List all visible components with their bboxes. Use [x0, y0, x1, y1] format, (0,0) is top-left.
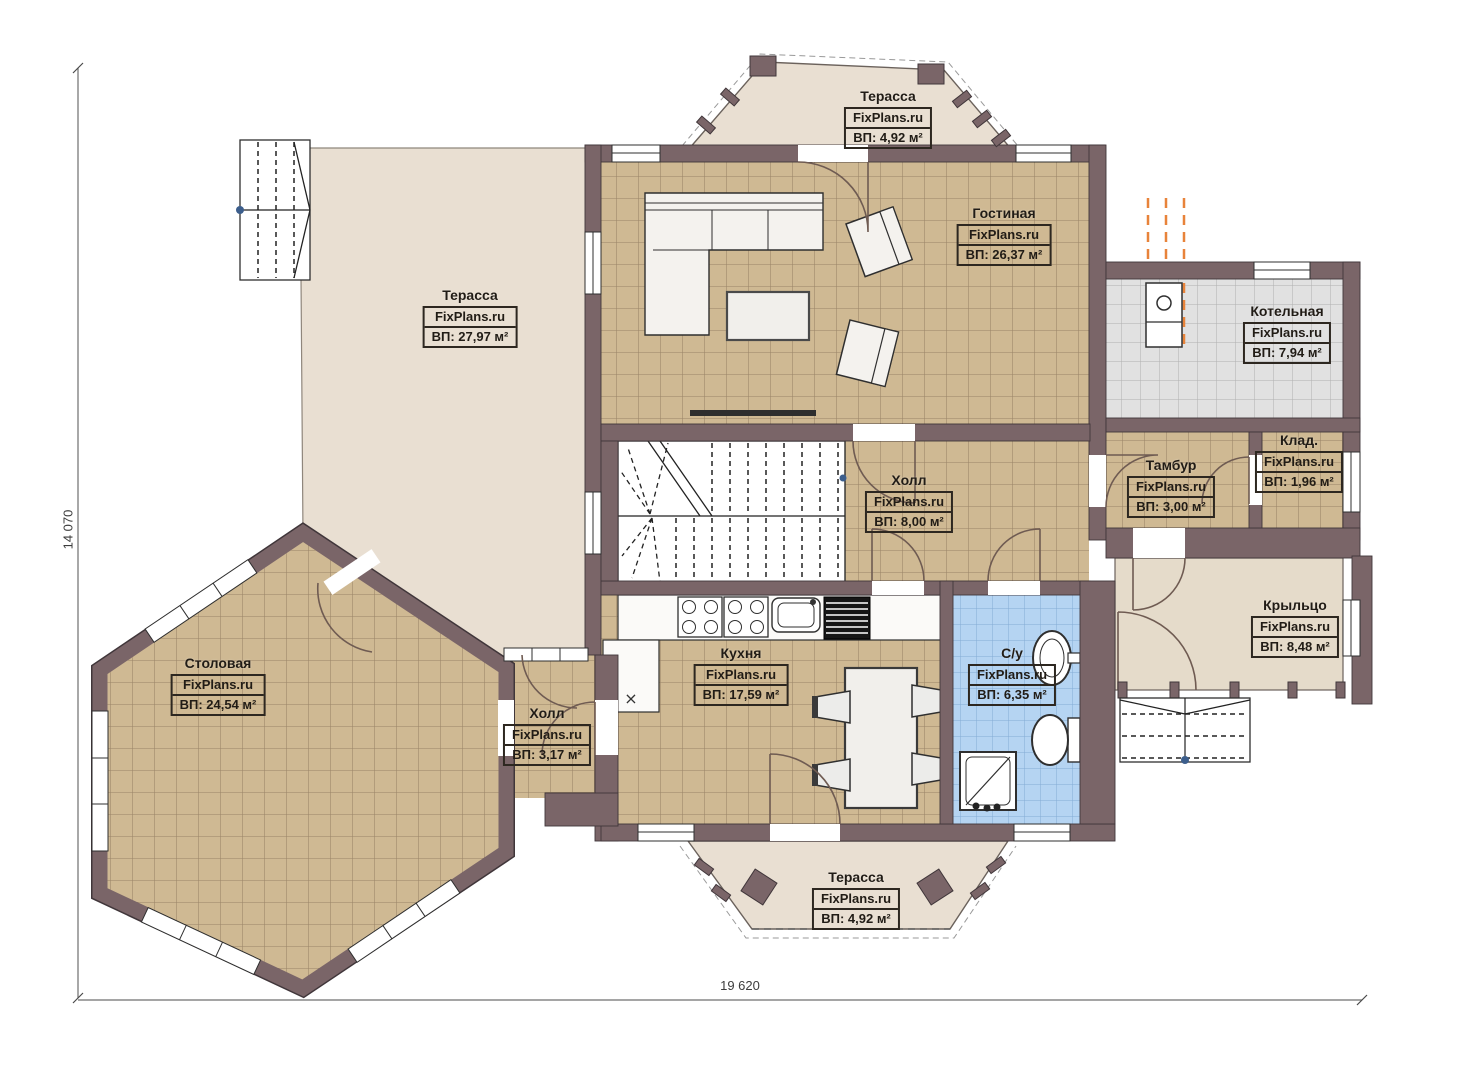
- room-area: ВП: 1,96 м²: [1257, 473, 1341, 491]
- room-label-terrace-bottom: Терасса FixPlans.ru ВП: 4,92 м²: [812, 869, 900, 930]
- room-brand: FixPlans.ru: [867, 493, 951, 513]
- room-name: Котельная: [1250, 303, 1323, 319]
- floor-plan-page: ×: [0, 0, 1473, 1080]
- room-label-living: Гостиная FixPlans.ru ВП: 26,37 м²: [957, 205, 1052, 266]
- room-brand: FixPlans.ru: [846, 109, 930, 129]
- room-area: ВП: 24,54 м²: [173, 696, 264, 714]
- svg-text:×: ×: [624, 689, 637, 708]
- room-brand: FixPlans.ru: [959, 226, 1050, 246]
- room-name: Крыльцо: [1263, 597, 1327, 613]
- room-name: Терасса: [860, 88, 916, 104]
- room-brand: FixPlans.ru: [1129, 478, 1213, 498]
- room-brand: FixPlans.ru: [1253, 618, 1337, 638]
- floor-plan-drawing: ×: [0, 0, 1473, 1080]
- room-label-terrace-left: Терасса FixPlans.ru ВП: 27,97 м²: [423, 287, 518, 348]
- room-brand: FixPlans.ru: [425, 308, 516, 328]
- room-name: Холл: [529, 705, 564, 721]
- room-label-hall-main: Холл FixPlans.ru ВП: 8,00 м²: [865, 472, 953, 533]
- coffee-table: [727, 292, 809, 340]
- dimension-label-horizontal: 19 620: [700, 978, 780, 993]
- room-info-box: FixPlans.ru ВП: 26,37 м²: [957, 224, 1052, 266]
- room-name: Терасса: [442, 287, 498, 303]
- porch-steps: [1120, 698, 1250, 764]
- room-area: ВП: 6,35 м²: [970, 686, 1054, 704]
- toilet: [1032, 715, 1080, 765]
- room-area: ВП: 26,37 м²: [959, 246, 1050, 264]
- room-info-box: FixPlans.ru ВП: 3,17 м²: [503, 724, 591, 766]
- room-label-vestibule: Тамбур FixPlans.ru ВП: 3,00 м²: [1127, 457, 1215, 518]
- room-label-dining: Столовая FixPlans.ru ВП: 24,54 м²: [171, 655, 266, 716]
- room-name: Холл: [891, 472, 926, 488]
- tv: [690, 410, 816, 416]
- room-info-box: FixPlans.ru ВП: 3,00 м²: [1127, 476, 1215, 518]
- room-info-box: FixPlans.ru ВП: 1,96 м²: [1255, 451, 1343, 493]
- room-name: Кухня: [721, 645, 762, 661]
- room-info-box: FixPlans.ru ВП: 8,48 м²: [1251, 616, 1339, 658]
- room-name: Тамбур: [1146, 457, 1197, 473]
- room-area: ВП: 4,92 м²: [846, 129, 930, 147]
- room-info-box: FixPlans.ru ВП: 27,97 м²: [423, 306, 518, 348]
- room-brand: FixPlans.ru: [505, 726, 589, 746]
- room-name: Столовая: [185, 655, 252, 671]
- room-label-boiler: Котельная FixPlans.ru ВП: 7,94 м²: [1243, 303, 1331, 364]
- room-info-box: FixPlans.ru ВП: 8,00 м²: [865, 491, 953, 533]
- room-label-bathroom: С/у FixPlans.ru ВП: 6,35 м²: [968, 645, 1056, 706]
- room-area: ВП: 8,48 м²: [1253, 638, 1337, 656]
- room-brand: FixPlans.ru: [970, 666, 1054, 686]
- room-label-kitchen: Кухня FixPlans.ru ВП: 17,59 м²: [694, 645, 789, 706]
- room-label-terrace-top: Терасса FixPlans.ru ВП: 4,92 м²: [844, 88, 932, 149]
- exterior-stair-topleft: [236, 140, 310, 280]
- room-area: ВП: 3,00 м²: [1129, 498, 1213, 516]
- room-label-porch: Крыльцо FixPlans.ru ВП: 8,48 м²: [1251, 597, 1339, 658]
- room-area: ВП: 8,00 м²: [867, 513, 951, 531]
- kitchen-sink: [772, 598, 820, 632]
- room-area: ВП: 27,97 м²: [425, 328, 516, 346]
- room-brand: FixPlans.ru: [696, 666, 787, 686]
- room-info-box: FixPlans.ru ВП: 17,59 м²: [694, 664, 789, 706]
- room-name: Клад.: [1280, 432, 1318, 448]
- dishwasher: [824, 597, 870, 639]
- room-info-box: FixPlans.ru ВП: 4,92 м²: [844, 107, 932, 149]
- room-name: Терасса: [828, 869, 884, 885]
- room-label-hall-small: Холл FixPlans.ru ВП: 3,17 м²: [503, 705, 591, 766]
- dimension-label-vertical: 14 070: [61, 500, 76, 560]
- main-staircase: [618, 441, 847, 584]
- shower-tray: [960, 752, 1016, 812]
- room-info-box: FixPlans.ru ВП: 6,35 м²: [968, 664, 1056, 706]
- room-brand: FixPlans.ru: [1257, 453, 1341, 473]
- room-info-box: FixPlans.ru ВП: 4,92 м²: [812, 888, 900, 930]
- room-info-box: FixPlans.ru ВП: 7,94 м²: [1243, 322, 1331, 364]
- room-area: ВП: 7,94 м²: [1245, 344, 1329, 362]
- room-area: ВП: 4,92 м²: [814, 910, 898, 928]
- room-area: ВП: 17,59 м²: [696, 686, 787, 704]
- room-area: ВП: 3,17 м²: [505, 746, 589, 764]
- room-label-storage: Клад. FixPlans.ru ВП: 1,96 м²: [1255, 432, 1343, 493]
- room-info-box: FixPlans.ru ВП: 24,54 м²: [171, 674, 266, 716]
- room-name: Гостиная: [972, 205, 1035, 221]
- room-brand: FixPlans.ru: [1245, 324, 1329, 344]
- room-name: С/у: [1001, 645, 1023, 661]
- room-brand: FixPlans.ru: [173, 676, 264, 696]
- room-brand: FixPlans.ru: [814, 890, 898, 910]
